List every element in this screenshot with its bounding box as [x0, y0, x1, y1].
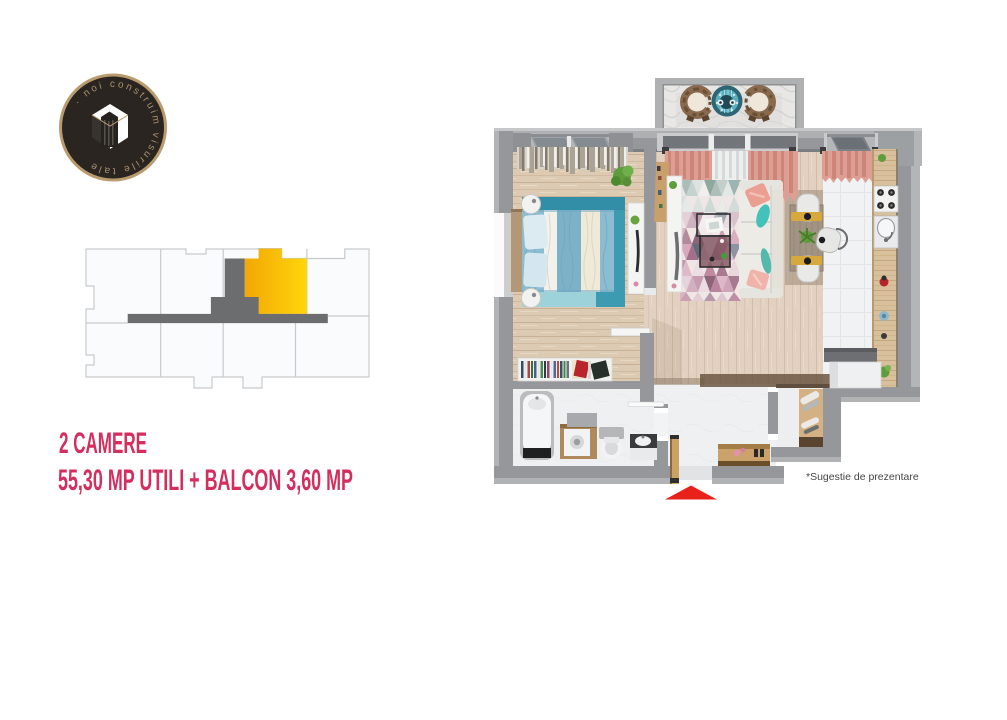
svg-text:*Sugestie de prezentare: *Sugestie de prezentare [806, 471, 919, 483]
svg-text:2 CAMERE: 2 CAMERE [59, 427, 147, 460]
svg-text:55,30 MP UTILI + BALCON 3,60 M: 55,30 MP UTILI + BALCON 3,60 MP [58, 464, 353, 497]
